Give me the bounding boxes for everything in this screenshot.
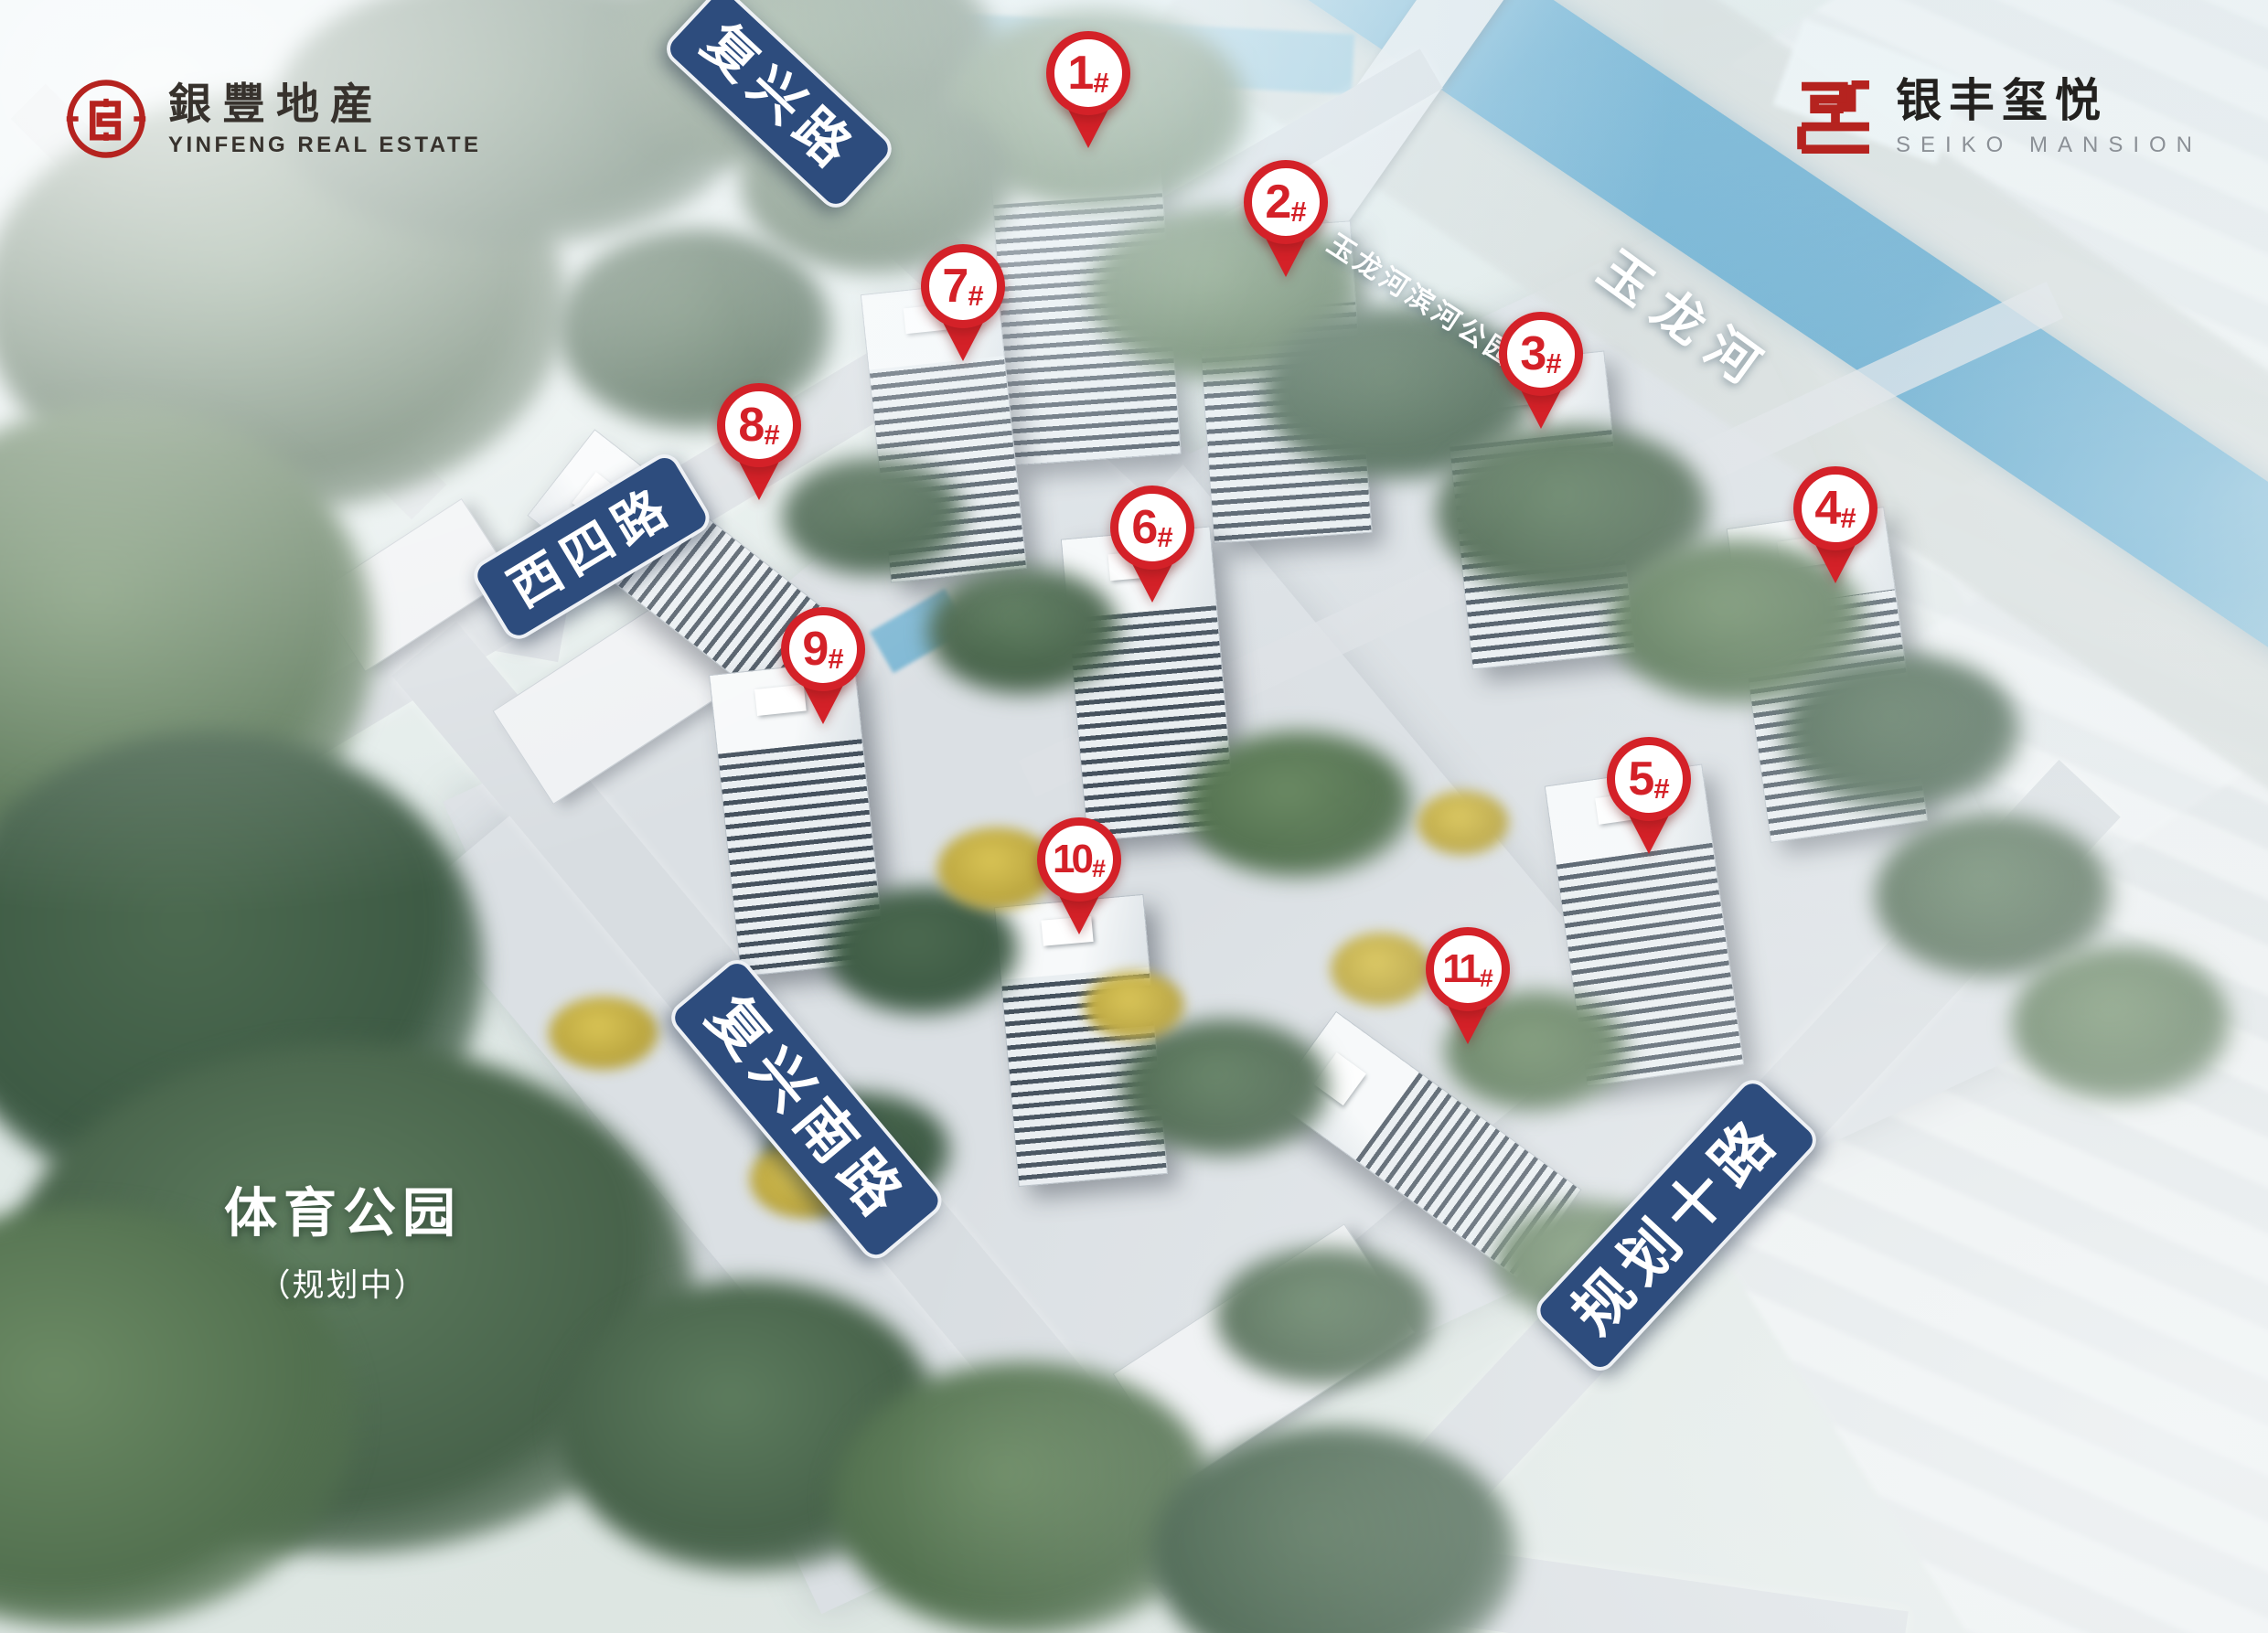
marker-circle: 4# xyxy=(1793,466,1878,550)
project-name-en: SEIKO MANSION xyxy=(1896,134,2202,156)
building-marker-11[interactable]: 11# xyxy=(1426,927,1510,1011)
marker-circle: 5# xyxy=(1607,737,1691,821)
marker-hash-sign: # xyxy=(1840,504,1856,532)
marker-hash-sign: # xyxy=(1546,349,1561,378)
marker-number: 3 xyxy=(1520,330,1544,378)
project-name-zh: 银丰玺悦 xyxy=(1896,78,2202,123)
marker-number: 5 xyxy=(1628,755,1652,803)
autumn-tree-cluster xyxy=(549,997,658,1070)
building-marker-4[interactable]: 4# xyxy=(1793,466,1878,550)
yinfeng-seal-icon xyxy=(64,77,148,161)
tree-cluster xyxy=(1184,731,1413,878)
autumn-tree-cluster xyxy=(1084,972,1184,1041)
sports-park-label: 体育公园 （规划中） xyxy=(224,1170,462,1307)
marker-circle: 6# xyxy=(1110,486,1194,570)
marker-number: 11 xyxy=(1442,949,1478,989)
marker-number: 7 xyxy=(942,262,966,310)
marker-number: 2 xyxy=(1265,178,1289,226)
marker-circle: 3# xyxy=(1499,312,1583,396)
developer-name-zh: 銀豐地産 xyxy=(168,82,482,125)
sports-park-title: 体育公园 xyxy=(224,1170,462,1247)
marker-hash-sign: # xyxy=(828,645,843,673)
marker-number: 6 xyxy=(1131,504,1155,551)
building-marker-10[interactable]: 10# xyxy=(1037,817,1121,902)
building-marker-8[interactable]: 8# xyxy=(717,383,801,467)
marker-hash-sign: # xyxy=(968,282,983,310)
seiko-mansion-seal-icon xyxy=(1795,77,1876,157)
tree-cluster xyxy=(782,457,965,576)
marker-hash-sign: # xyxy=(1480,966,1493,991)
tower-10 xyxy=(994,894,1168,1187)
marker-circle: 9# xyxy=(781,607,865,691)
marker-number: 4 xyxy=(1814,485,1838,532)
marker-hash-sign: # xyxy=(1092,857,1106,881)
building-marker-2[interactable]: 2# xyxy=(1244,160,1328,244)
marker-hash-sign: # xyxy=(1093,69,1108,97)
site-plan-aerial-view: 体育公园 （规划中） 复兴路西四路复兴南路规划十路玉龙河玉龙河滨河公园 1#2#… xyxy=(0,0,2268,1633)
marker-circle: 10# xyxy=(1037,817,1121,902)
tree-cluster xyxy=(832,1362,1216,1633)
marker-number: 8 xyxy=(738,401,762,449)
tree-cluster xyxy=(1783,654,2021,809)
marker-circle: 2# xyxy=(1244,160,1328,244)
marker-hash-sign: # xyxy=(1290,197,1306,226)
tree-cluster xyxy=(928,567,1120,695)
building-marker-6[interactable]: 6# xyxy=(1110,486,1194,570)
sports-park-subtitle: （规划中） xyxy=(224,1260,462,1307)
marker-number: 1 xyxy=(1067,49,1091,97)
building-marker-7[interactable]: 7# xyxy=(921,244,1005,328)
marker-hash-sign: # xyxy=(1653,774,1669,803)
tree-cluster xyxy=(1216,1248,1436,1385)
developer-name-en: YINFENG REAL ESTATE xyxy=(168,134,482,156)
developer-logo: 銀豐地産 YINFENG REAL ESTATE xyxy=(64,77,482,161)
autumn-tree-cluster xyxy=(1331,933,1431,1006)
building-marker-9[interactable]: 9# xyxy=(781,607,865,691)
building-marker-1[interactable]: 1# xyxy=(1046,31,1130,115)
marker-circle: 1# xyxy=(1046,31,1130,115)
marker-circle: 7# xyxy=(921,244,1005,328)
marker-hash-sign: # xyxy=(1157,523,1172,551)
marker-number: 10 xyxy=(1053,839,1090,880)
project-logo: 银丰玺悦 SEIKO MANSION xyxy=(1795,77,2202,157)
building-marker-3[interactable]: 3# xyxy=(1499,312,1583,396)
marker-circle: 8# xyxy=(717,383,801,467)
tree-cluster xyxy=(1120,1019,1331,1157)
marker-number: 9 xyxy=(802,625,826,673)
autumn-tree-cluster xyxy=(1417,791,1509,855)
marker-circle: 11# xyxy=(1426,927,1510,1011)
marker-hash-sign: # xyxy=(764,421,779,449)
tree-cluster xyxy=(2012,946,2231,1102)
building-marker-5[interactable]: 5# xyxy=(1607,737,1691,821)
